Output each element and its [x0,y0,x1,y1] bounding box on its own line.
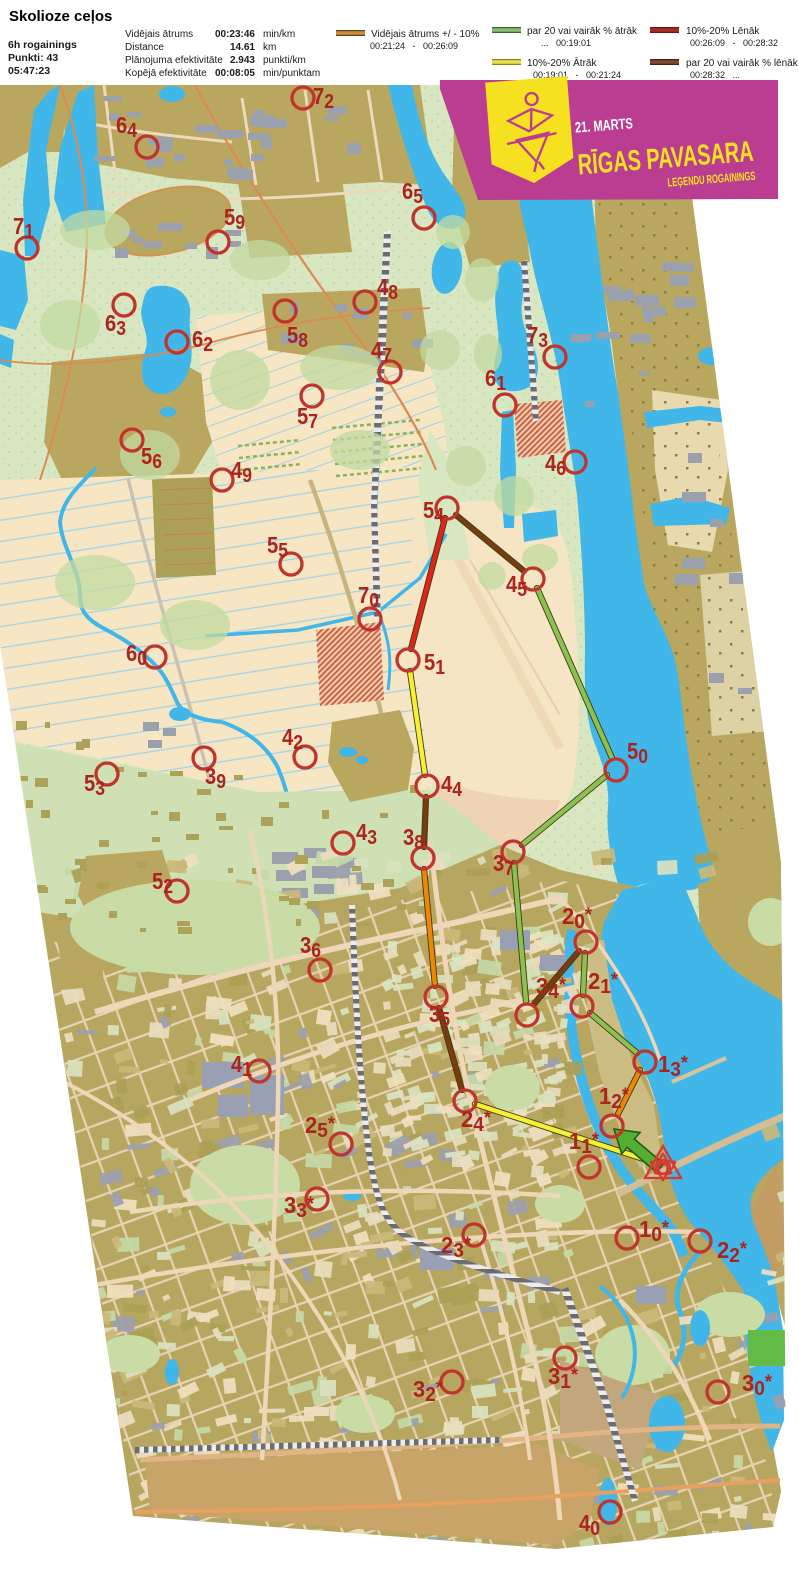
svg-text:Plānojuma efektivitāte: Plānojuma efektivitāte [125,55,223,66]
svg-text:Vidējais ātrums: Vidējais ātrums [125,29,193,40]
svg-text:min/punktam: min/punktam [263,68,320,79]
svg-text:... 00:19:01: ... 00:19:01 [541,38,591,48]
svg-text:00:21:24 - 00:26:09: 00:21:24 - 00:26:09 [370,41,458,51]
svg-text:km: km [263,42,276,53]
svg-text:10%-20% Lēnāk: 10%-20% Lēnāk [686,26,760,37]
svg-text:par 20 vai vairāk % lēnāk: par 20 vai vairāk % lēnāk [686,58,799,69]
svg-text:14.61: 14.61 [230,42,255,53]
svg-text:2.943: 2.943 [230,55,255,66]
svg-text:punkti/km: punkti/km [263,55,306,66]
svg-text:Vidējais ātrums +/ - 10%: Vidējais ātrums +/ - 10% [371,29,480,40]
svg-text:Distance: Distance [125,42,164,53]
svg-text:00:08:05: 00:08:05 [215,68,255,79]
svg-text:min/km: min/km [263,29,295,40]
svg-text:00:23:46: 00:23:46 [215,29,255,40]
svg-text:Kopējā efektivitāte: Kopējā efektivitāte [125,68,207,79]
svg-text:Skolioze ceļos: Skolioze ceļos [9,8,112,25]
svg-text:05:47:23: 05:47:23 [8,65,50,77]
svg-text:10%-20% Ātrāk: 10%-20% Ātrāk [527,57,597,69]
svg-text:Punkti: 43: Punkti: 43 [8,52,58,64]
svg-text:6h rogainings: 6h rogainings [8,39,77,51]
svg-text:00:26:09 - 00:28:32: 00:26:09 - 00:28:32 [690,38,778,48]
svg-text:00:28:32 ...: 00:28:32 ... [690,70,740,80]
svg-text:par 20 vai vairāk % ātrāk: par 20 vai vairāk % ātrāk [527,26,638,37]
